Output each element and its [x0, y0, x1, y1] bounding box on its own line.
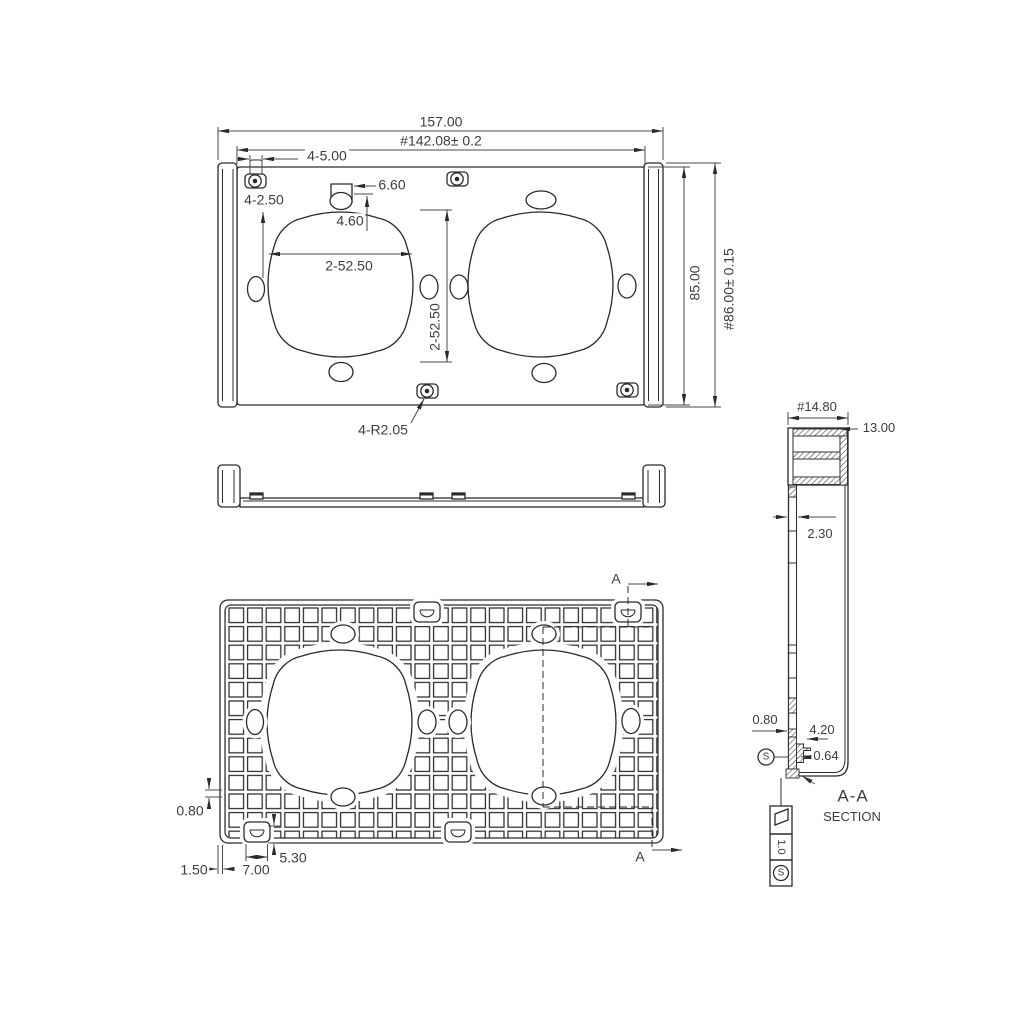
dim-rib-thickness: 0.80: [750, 713, 779, 727]
dim-corner-radius: 4-R2.05: [356, 422, 410, 437]
flatness-modifier-symbol: S: [778, 868, 785, 879]
section-marker-top: A: [609, 571, 622, 586]
flatness-icon: [775, 809, 788, 825]
section-marker-bottom: A: [633, 849, 646, 864]
left-rail: [218, 163, 237, 407]
dim-boss-width-bottom: 7.00: [240, 862, 271, 877]
top-view: [218, 127, 721, 423]
dim-overall-width: 157.00: [418, 114, 465, 129]
screw-hole: [245, 160, 266, 188]
snap-boss: [445, 822, 471, 842]
dim-edge-wall: 1.50: [178, 862, 209, 877]
flatness-tolerance-value: 1.0: [775, 839, 787, 854]
drawing-linework: [0, 0, 1024, 1024]
screw-hole: [417, 384, 438, 398]
snap-boss: [244, 822, 270, 842]
right-rail: [644, 163, 663, 407]
dim-rail-width: #14.80: [795, 400, 839, 414]
dim-foot-height: 4.20: [807, 723, 836, 737]
dim-plate-height: 85.00: [687, 263, 702, 302]
section-subtitle: SECTION: [821, 810, 883, 824]
section-title: A-A: [835, 788, 870, 807]
dim-opening-width: 2-52.50: [323, 258, 374, 273]
dim-hole-diameter: 4-2.50: [242, 192, 286, 207]
dim-wall-thickness: 2.30: [805, 527, 834, 541]
dim-opening-height: 2-52.50: [427, 301, 442, 352]
dim-rail-depth: 13.00: [861, 421, 898, 435]
bottom-view: [205, 584, 682, 874]
dim-boss-height-bottom: 5.30: [277, 850, 308, 865]
screw-hole: [617, 383, 638, 397]
side-profile-view: [218, 465, 665, 507]
dim-boss-width: 4-5.00: [305, 148, 349, 163]
dim-rib-offset: 0.80: [174, 803, 205, 818]
snap-boss: [414, 602, 440, 622]
engineering-drawing: 157.00 #142.08± 0.2 4-5.00 4-2.50 6.60 4…: [0, 0, 1024, 1024]
wall-ticks: [789, 497, 797, 731]
dim-notch-width: 6.60: [376, 177, 407, 192]
datum-modifier-symbol: S: [763, 752, 770, 763]
screw-hole: [447, 172, 468, 186]
dim-overall-height: #86.00± 0.15: [721, 246, 736, 332]
dim-notch-depth: 4.60: [334, 213, 365, 228]
dim-mount-width: #142.08± 0.2: [398, 133, 484, 148]
dim-foot-lip: 0.64: [811, 749, 840, 763]
